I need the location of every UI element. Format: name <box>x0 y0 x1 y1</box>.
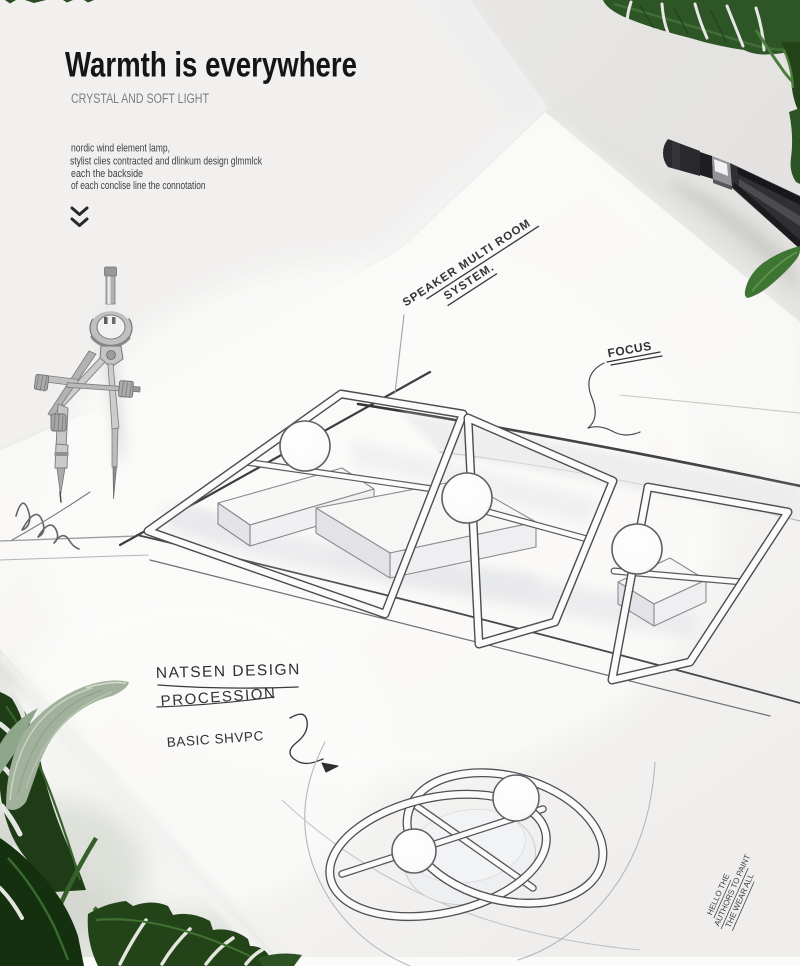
svg-text:each the backside: each the backside <box>71 168 143 180</box>
svg-text:nordic wind element lamp,: nordic wind element lamp, <box>71 143 170 155</box>
svg-text:stylist clies contracted and d: stylist clies contracted and dlinkum des… <box>70 156 262 168</box>
svg-text:Warmth is everywhere: Warmth is everywhere <box>65 45 357 85</box>
svg-text:of each conclise line the conn: of each conclise line the connotation <box>71 180 206 192</box>
svg-text:CRYSTAL AND SOFT LIGHT: CRYSTAL AND SOFT LIGHT <box>71 91 209 106</box>
